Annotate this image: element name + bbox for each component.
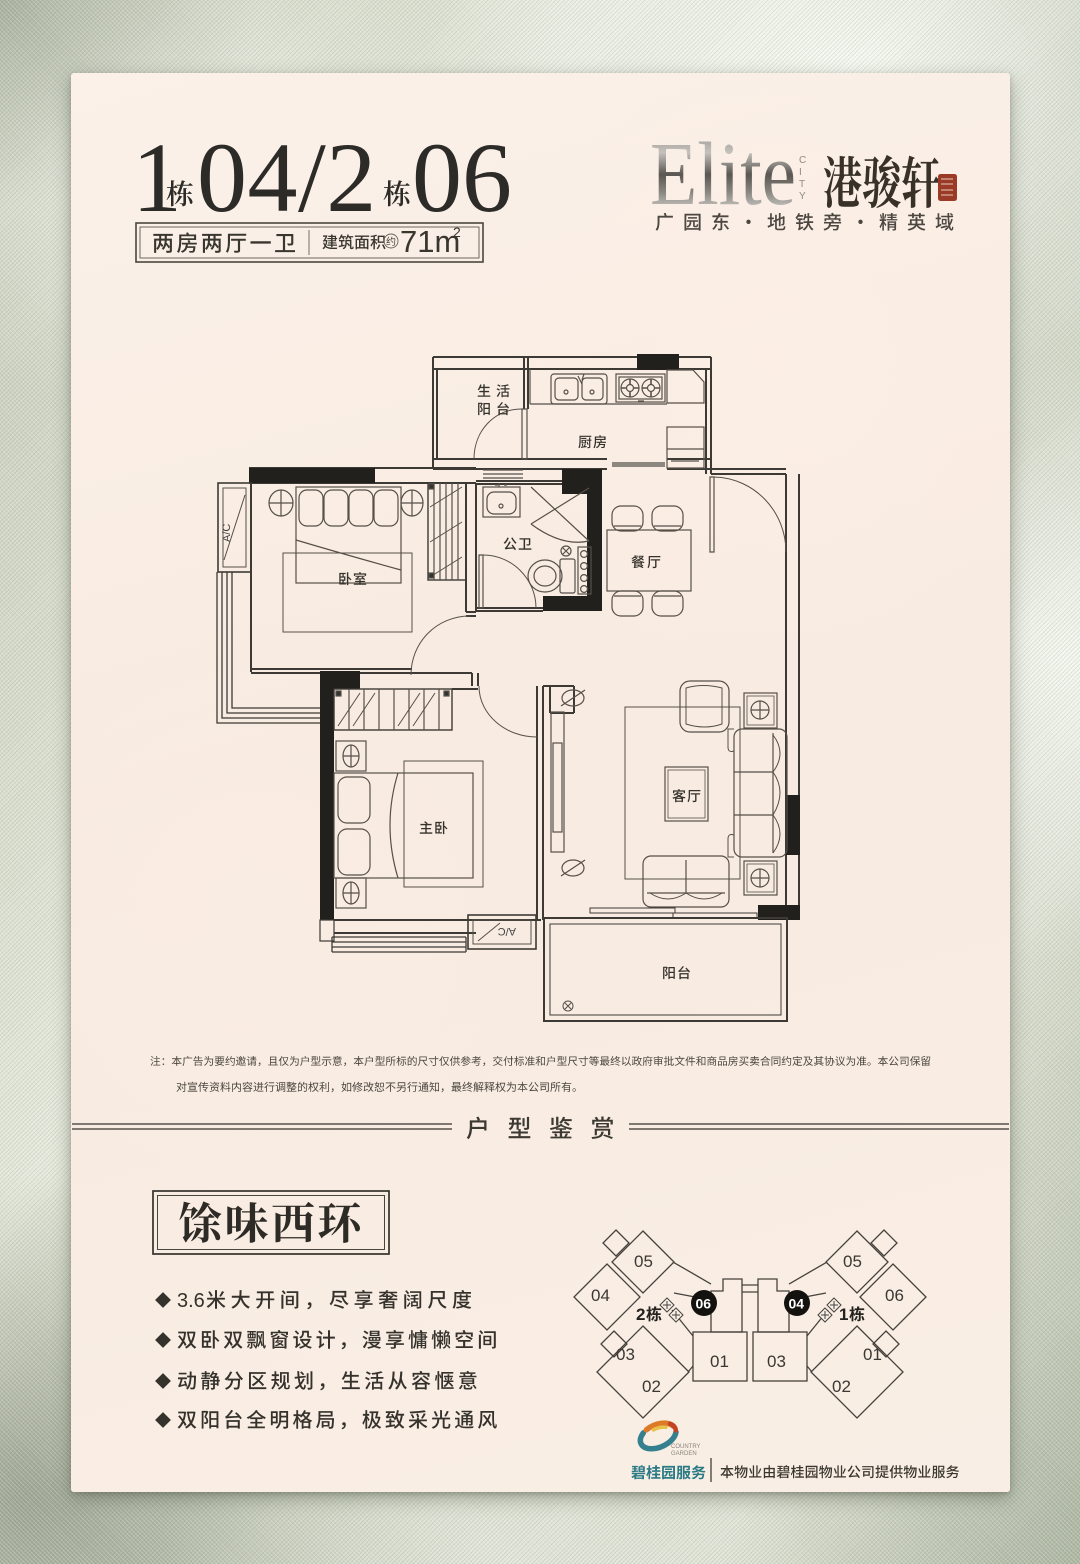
svg-text:04: 04: [789, 1296, 805, 1312]
svg-text:01: 01: [710, 1352, 729, 1371]
svg-text:06: 06: [696, 1296, 712, 1312]
svg-text:02: 02: [832, 1377, 851, 1396]
svg-text:03: 03: [767, 1352, 786, 1371]
svg-text:GARDEN: GARDEN: [671, 1451, 697, 1457]
svg-text:04/2: 04/2: [197, 122, 377, 233]
svg-text:1: 1: [132, 122, 182, 233]
svg-text:Y: Y: [799, 191, 806, 202]
svg-text:I: I: [799, 167, 802, 178]
svg-text:T: T: [799, 179, 805, 190]
svg-text:06: 06: [885, 1286, 904, 1305]
svg-text:04: 04: [591, 1286, 610, 1305]
svg-text:06: 06: [412, 122, 512, 233]
svg-text:A/C: A/C: [498, 925, 516, 937]
svg-text:05: 05: [843, 1252, 862, 1271]
svg-text:2: 2: [636, 1305, 645, 1324]
svg-text:71m: 71m: [400, 224, 460, 259]
svg-text:Elite: Elite: [650, 125, 796, 224]
svg-text:05: 05: [634, 1252, 653, 1271]
svg-text:1: 1: [839, 1305, 848, 1324]
svg-text:03: 03: [616, 1345, 635, 1364]
svg-text:02: 02: [642, 1377, 661, 1396]
svg-text:2: 2: [453, 224, 461, 240]
svg-text:01: 01: [863, 1345, 882, 1364]
svg-text:A/C: A/C: [221, 524, 233, 542]
svg-text:3.6: 3.6: [177, 1290, 205, 1312]
svg-text:COUNTRY: COUNTRY: [671, 1444, 701, 1450]
svg-text:C: C: [799, 155, 806, 166]
